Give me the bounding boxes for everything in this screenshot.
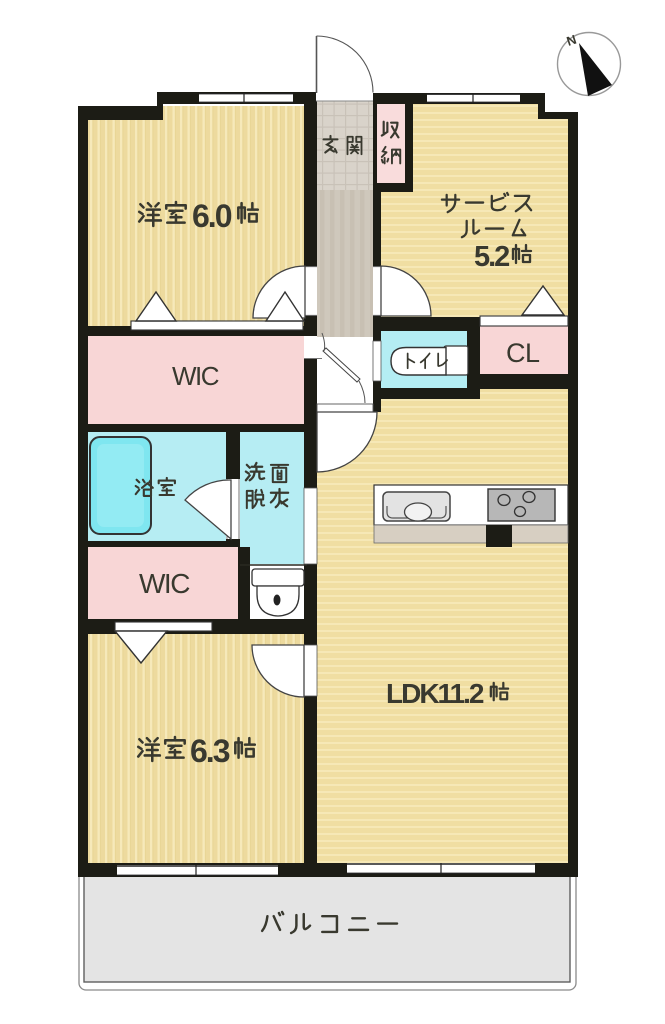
svg-text:6.0: 6.0 bbox=[192, 198, 232, 234]
svg-text:WIC: WIC bbox=[172, 361, 219, 391]
svg-text:5.2: 5.2 bbox=[474, 241, 509, 273]
svg-text:6.3: 6.3 bbox=[190, 733, 230, 769]
svg-text:LDK11.2: LDK11.2 bbox=[386, 678, 484, 709]
svg-text:WIC: WIC bbox=[139, 568, 190, 599]
svg-text:CL: CL bbox=[506, 338, 540, 368]
